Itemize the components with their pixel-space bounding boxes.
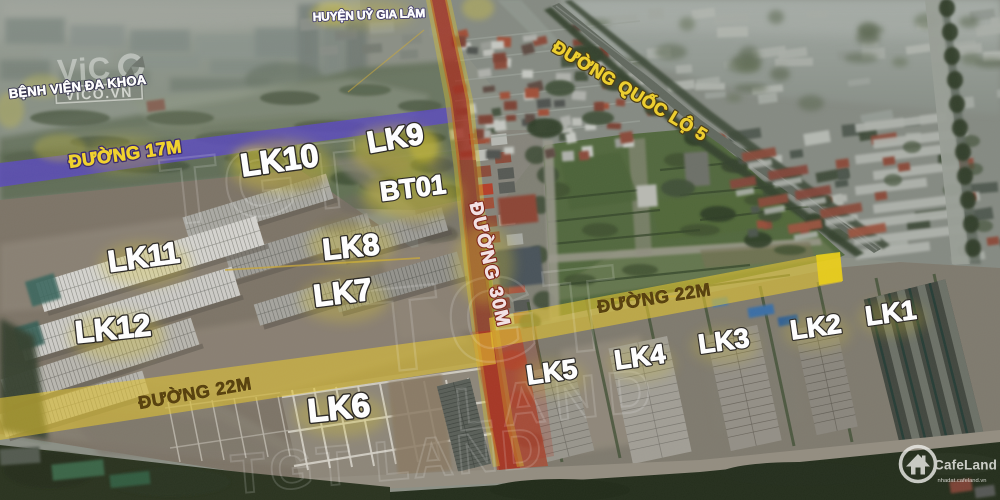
svg-text:nhadat.cafeland.vn: nhadat.cafeland.vn [938, 478, 987, 484]
svg-text:LK7: LK7 [312, 272, 374, 314]
svg-text:LK6: LK6 [306, 386, 372, 429]
svg-text:CafeLand: CafeLand [934, 458, 997, 473]
svg-text:LK8: LK8 [321, 228, 381, 267]
